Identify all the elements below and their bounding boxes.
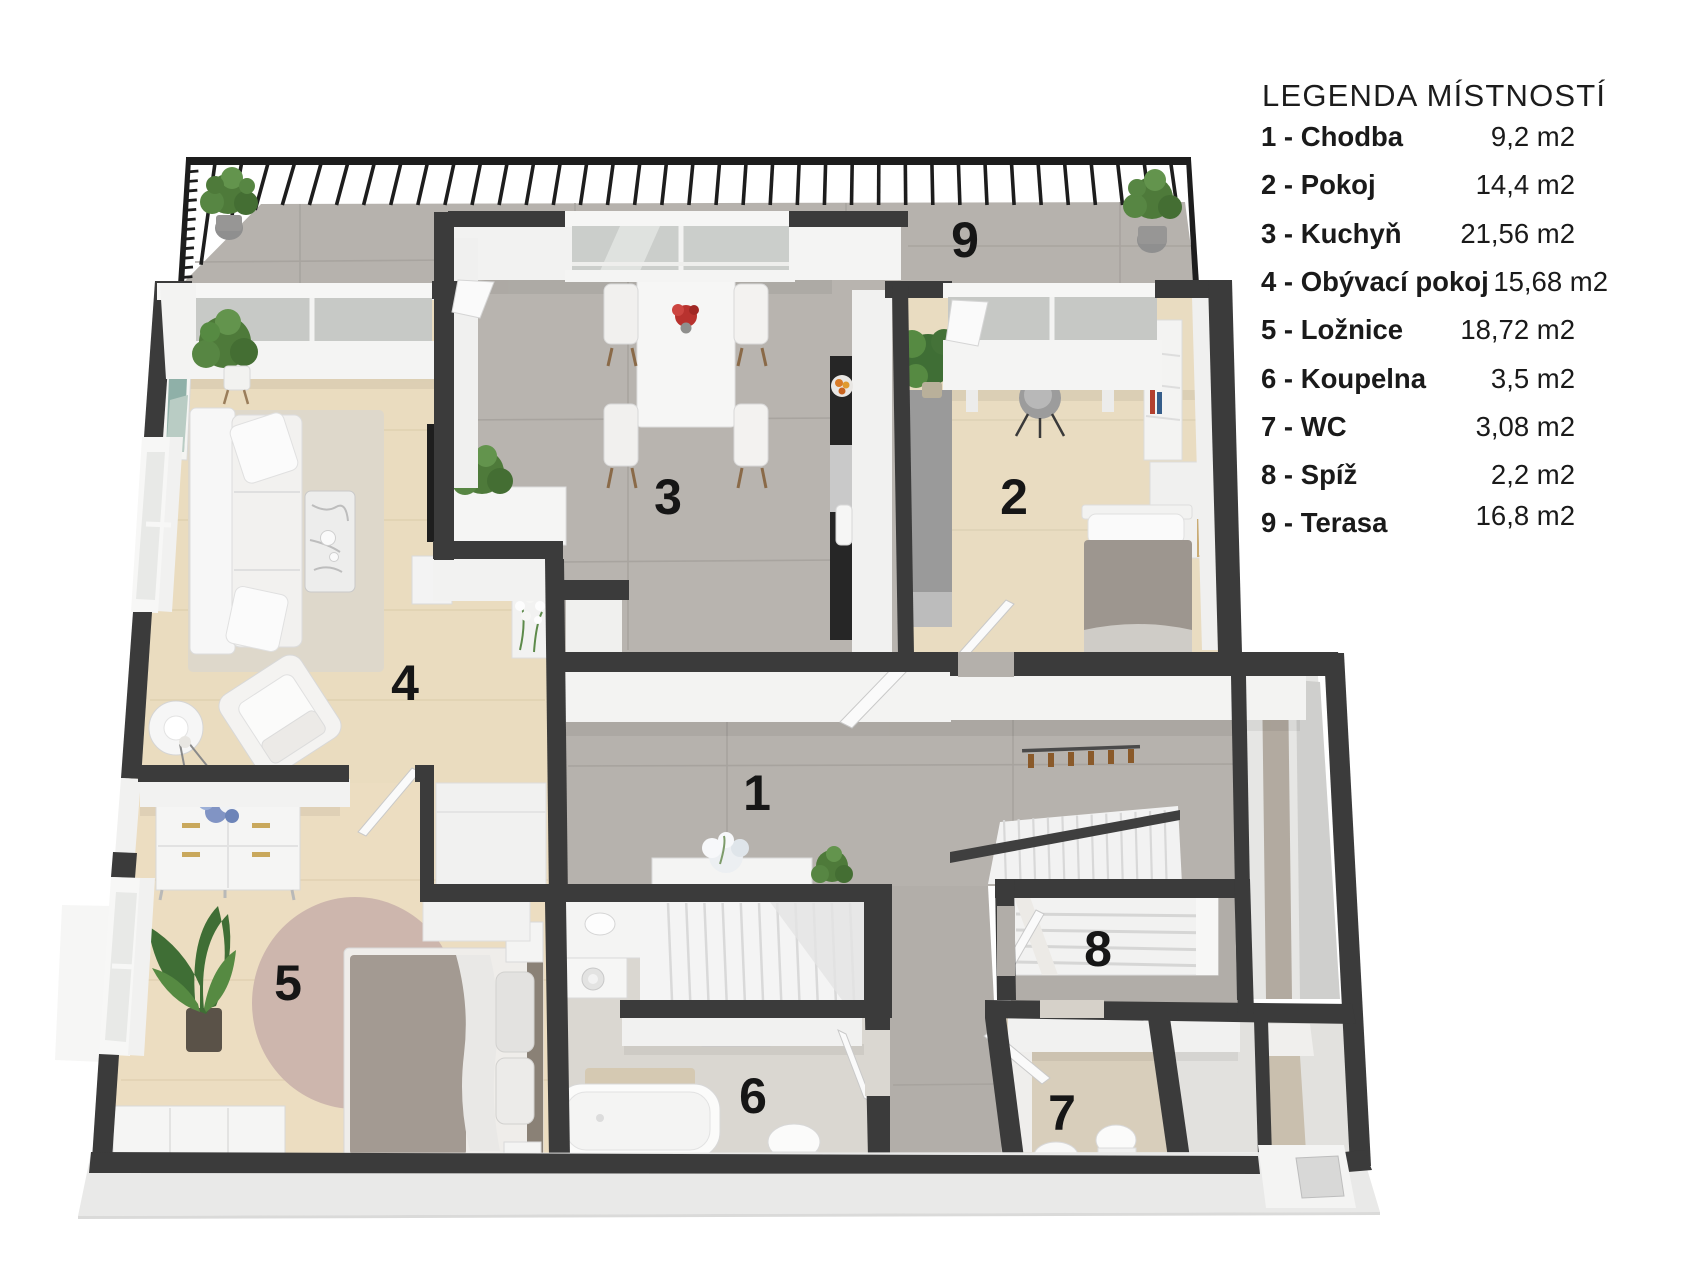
svg-text:18,72 m2: 18,72 m2 — [1460, 314, 1575, 345]
svg-text:9 - Terasa: 9 - Terasa — [1261, 507, 1388, 538]
svg-text:14,4 m2: 14,4 m2 — [1476, 169, 1575, 200]
svg-text:1: 1 — [743, 765, 771, 821]
svg-text:3,5 m2: 3,5 m2 — [1491, 363, 1575, 394]
svg-text:9: 9 — [951, 212, 979, 268]
svg-text:4 - Obývací pokoj: 4 - Obývací pokoj — [1261, 266, 1489, 297]
svg-text:4: 4 — [391, 655, 419, 711]
svg-text:3: 3 — [654, 469, 682, 525]
svg-text:5: 5 — [274, 955, 302, 1011]
svg-text:7: 7 — [1048, 1085, 1076, 1141]
svg-text:6 - Koupelna: 6 - Koupelna — [1261, 363, 1427, 394]
svg-text:LEGENDA MÍSTNOSTÍ: LEGENDA MÍSTNOSTÍ — [1262, 78, 1606, 113]
svg-text:1 - Chodba: 1 - Chodba — [1261, 121, 1404, 152]
svg-text:15,68 m2: 15,68 m2 — [1493, 266, 1608, 297]
svg-text:21,56 m2: 21,56 m2 — [1460, 218, 1575, 249]
svg-text:6: 6 — [739, 1068, 767, 1124]
svg-text:2,2 m2: 2,2 m2 — [1491, 459, 1575, 490]
svg-text:2 - Pokoj: 2 - Pokoj — [1261, 169, 1376, 200]
svg-text:3 - Kuchyň: 3 - Kuchyň — [1261, 218, 1402, 249]
svg-text:8: 8 — [1084, 921, 1112, 977]
svg-text:2: 2 — [1000, 469, 1028, 525]
svg-text:9,2 m2: 9,2 m2 — [1491, 121, 1575, 152]
svg-text:5 - Ložnice: 5 - Ložnice — [1261, 314, 1403, 345]
svg-text:8 - Spíž: 8 - Spíž — [1261, 459, 1357, 490]
svg-text:7 - WC: 7 - WC — [1261, 411, 1347, 442]
svg-text:3,08 m2: 3,08 m2 — [1476, 411, 1575, 442]
svg-text:16,8 m2: 16,8 m2 — [1476, 500, 1575, 531]
